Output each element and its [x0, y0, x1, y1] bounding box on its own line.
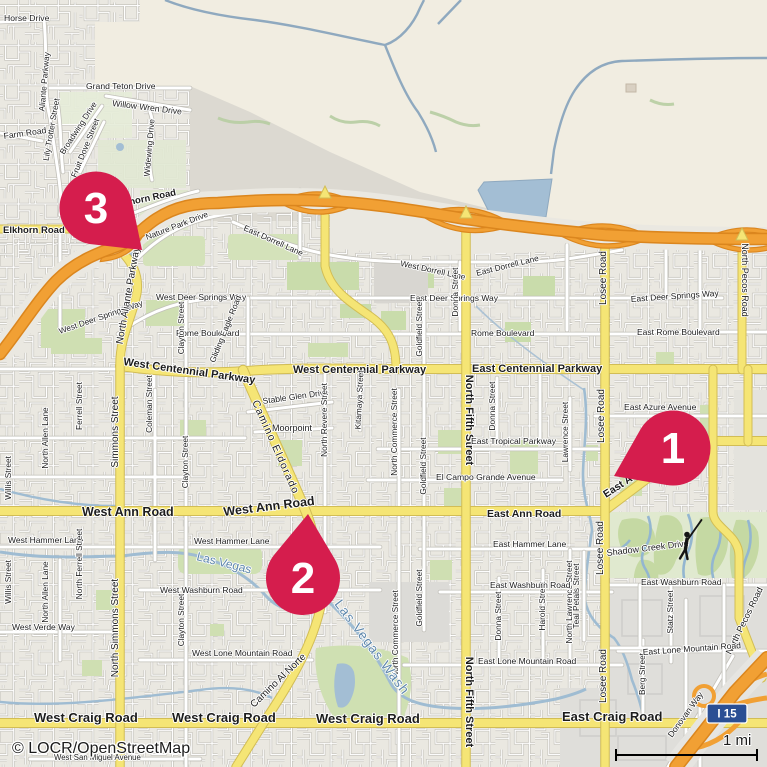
svg-text:East Azure Avenue: East Azure Avenue: [624, 402, 697, 412]
svg-text:Losee Road: Losee Road: [596, 389, 607, 443]
svg-text:Goldfield Street: Goldfield Street: [418, 437, 428, 495]
svg-text:Coleman Street: Coleman Street: [144, 374, 154, 432]
svg-text:Willis Street: Willis Street: [3, 559, 13, 603]
svg-text:Clayton Street: Clayton Street: [180, 435, 190, 488]
svg-text:Berg Street: Berg Street: [637, 652, 647, 695]
svg-text:East Rome Boulevard: East Rome Boulevard: [637, 327, 720, 337]
svg-text:East Washburn Road: East Washburn Road: [641, 577, 722, 587]
svg-text:Horse Drive: Horse Drive: [4, 13, 50, 23]
svg-text:North Ferrell Street: North Ferrell Street: [74, 528, 84, 599]
svg-text:Donna Street: Donna Street: [493, 591, 503, 641]
svg-text:North Revere Street: North Revere Street: [319, 382, 329, 456]
svg-text:North Allen Lane: North Allen Lane: [40, 407, 50, 469]
svg-text:Goldfield Street: Goldfield Street: [414, 299, 424, 357]
svg-text:North Simmons Street: North Simmons Street: [110, 579, 121, 678]
svg-text:East Centennial Parkway: East Centennial Parkway: [472, 363, 603, 375]
svg-text:Clayton Street: Clayton Street: [176, 301, 186, 354]
svg-text:El Campo Grande Avenue: El Campo Grande Avenue: [436, 472, 536, 482]
svg-text:West Craig Road: West Craig Road: [316, 711, 420, 726]
svg-text:West Craig Road: West Craig Road: [34, 710, 138, 725]
svg-text:East Washburn Road: East Washburn Road: [490, 580, 571, 590]
svg-text:West Hammer Lane: West Hammer Lane: [8, 535, 84, 545]
svg-text:Ferrell Street: Ferrell Street: [74, 381, 84, 430]
svg-text:Rome Boulevard: Rome Boulevard: [471, 328, 535, 338]
svg-text:Losee Road: Losee Road: [595, 521, 606, 575]
svg-text:Goldfield Street: Goldfield Street: [414, 569, 424, 627]
svg-text:2: 2: [291, 554, 315, 603]
svg-text:Losee Road: Losee Road: [598, 251, 609, 305]
svg-text:Elkhorn Road: Elkhorn Road: [3, 225, 65, 236]
svg-text:East Craig Road: East Craig Road: [562, 709, 662, 724]
svg-text:3: 3: [84, 184, 108, 233]
svg-text:North Pecos Road: North Pecos Road: [740, 243, 750, 317]
svg-text:Simmons Street: Simmons Street: [110, 396, 121, 467]
svg-text:West Washburn Road: West Washburn Road: [160, 585, 243, 595]
svg-text:North Allen Lane: North Allen Lane: [40, 561, 50, 623]
svg-text:North Commerce Street: North Commerce Street: [389, 388, 399, 476]
svg-text:Teal Petals Street: Teal Petals Street: [571, 563, 581, 629]
svg-text:West Hammer Lane: West Hammer Lane: [194, 536, 270, 546]
svg-text:East Tropical Parkway: East Tropical Parkway: [471, 436, 557, 446]
svg-text:1 mi: 1 mi: [723, 732, 751, 749]
svg-text:Grand Teton Drive: Grand Teton Drive: [86, 81, 156, 91]
svg-text:Statz Street: Statz Street: [665, 590, 675, 634]
svg-text:Lawrence Street: Lawrence Street: [560, 401, 570, 462]
svg-text:I 15: I 15: [717, 709, 737, 721]
svg-text:West Ann Road: West Ann Road: [82, 505, 174, 519]
svg-text:Moorpoint: Moorpoint: [272, 423, 313, 433]
svg-text:Donna Street: Donna Street: [450, 267, 460, 317]
svg-text:East Ann Road: East Ann Road: [487, 508, 561, 520]
svg-text:1: 1: [661, 424, 685, 473]
svg-text:North Fifth Street: North Fifth Street: [463, 657, 475, 748]
svg-text:Losee Road: Losee Road: [598, 649, 609, 703]
svg-text:Willis Street: Willis Street: [3, 455, 13, 499]
svg-text:West Lone Mountain Road: West Lone Mountain Road: [192, 648, 293, 658]
svg-text:East Lone Mountain Road: East Lone Mountain Road: [478, 656, 577, 666]
svg-text:East Hammer Lane: East Hammer Lane: [493, 539, 566, 549]
svg-text:West Craig Road: West Craig Road: [172, 710, 276, 725]
svg-text:Clayton Street: Clayton Street: [176, 593, 186, 646]
svg-text:© LOCR/OpenStreetMap: © LOCR/OpenStreetMap: [12, 740, 190, 757]
svg-text:North Fifth Street: North Fifth Street: [463, 375, 475, 466]
svg-text:Donna Street: Donna Street: [487, 381, 497, 431]
